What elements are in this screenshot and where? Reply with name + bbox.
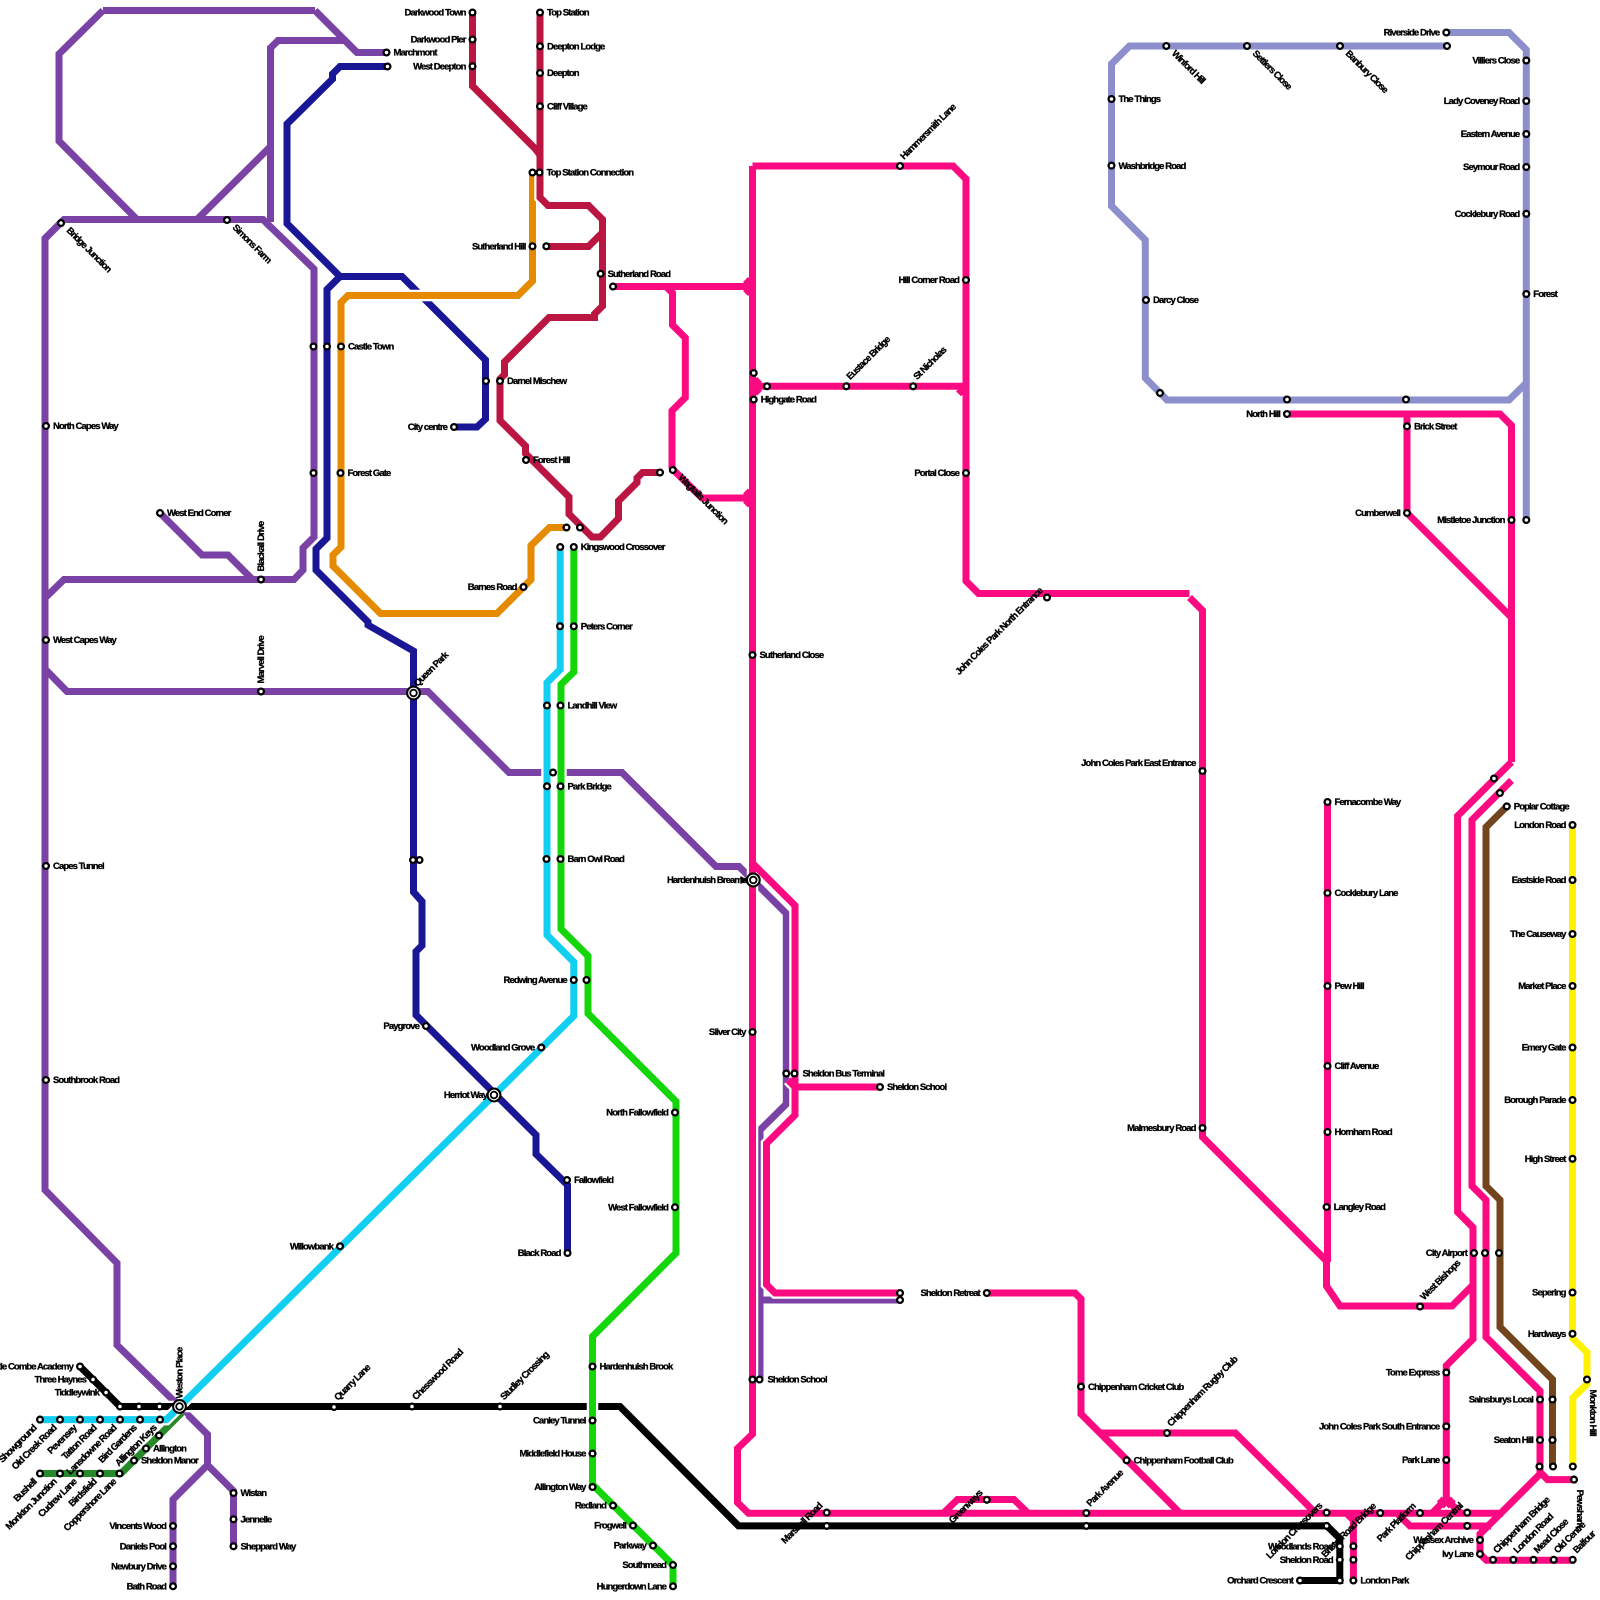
- svg-text:Castle Combe Academy: Castle Combe Academy: [0, 1362, 75, 1373]
- svg-text:Wistan: Wistan: [241, 1488, 268, 1499]
- svg-text:Chippenham Cricket Club: Chippenham Cricket Club: [1088, 1382, 1185, 1393]
- svg-text:Sheldon School: Sheldon School: [768, 1375, 827, 1386]
- svg-text:Hardenhuish Brook: Hardenhuish Brook: [600, 1362, 674, 1373]
- svg-text:Hungerdown Lane: Hungerdown Lane: [597, 1582, 667, 1593]
- svg-text:Daniels Pool: Daniels Pool: [120, 1542, 166, 1553]
- svg-text:Blackall Drive: Blackall Drive: [256, 521, 267, 571]
- svg-text:Cliff Avenue: Cliff Avenue: [1335, 1061, 1380, 1072]
- svg-text:Allington Way: Allington Way: [534, 1482, 587, 1493]
- svg-text:Washbridge Road: Washbridge Road: [1119, 161, 1187, 172]
- svg-text:Newbury Drive: Newbury Drive: [111, 1562, 166, 1573]
- svg-text:Black Road: Black Road: [518, 1248, 562, 1259]
- svg-text:Orchard Crescent: Orchard Crescent: [1227, 1576, 1295, 1587]
- svg-text:Redland: Redland: [575, 1501, 607, 1512]
- svg-text:Redwing Avenue: Redwing Avenue: [504, 975, 568, 986]
- svg-text:Barn Owl Road: Barn Owl Road: [568, 854, 625, 865]
- svg-text:Castle Town: Castle Town: [348, 342, 394, 353]
- svg-text:Silver City: Silver City: [709, 1027, 747, 1038]
- svg-text:Sutherland Close: Sutherland Close: [760, 650, 824, 661]
- svg-text:Cocklebury Road: Cocklebury Road: [1455, 209, 1521, 220]
- svg-text:Allington: Allington: [153, 1444, 187, 1455]
- svg-text:Langley Road: Langley Road: [1334, 1202, 1387, 1213]
- svg-text:West End Corner: West End Corner: [167, 508, 232, 519]
- svg-text:The Causeway: The Causeway: [1510, 929, 1567, 940]
- svg-text:Sheldon Road: Sheldon Road: [1280, 1555, 1334, 1566]
- svg-text:Darnel Mischew: Darnel Mischew: [507, 376, 568, 387]
- svg-text:Paygrove: Paygrove: [383, 1021, 419, 1032]
- svg-text:Tiddleywink: Tiddleywink: [55, 1388, 101, 1399]
- svg-text:John Coles Park East Entrance: John Coles Park East Entrance: [1081, 758, 1196, 769]
- svg-text:Eastside Road: Eastside Road: [1512, 875, 1567, 886]
- svg-text:Forest: Forest: [1533, 289, 1558, 300]
- svg-text:Hornham Road: Hornham Road: [1335, 1127, 1393, 1138]
- svg-text:Top Station: Top Station: [547, 8, 590, 19]
- svg-text:Deepton: Deepton: [547, 68, 580, 79]
- svg-text:Malmesbury Road: Malmesbury Road: [1127, 1123, 1196, 1134]
- svg-text:Herriot Way: Herriot Way: [444, 1090, 489, 1101]
- svg-text:London Park: London Park: [1360, 1576, 1410, 1587]
- svg-text:Barnes Road: Barnes Road: [468, 582, 518, 593]
- svg-text:Weston Place: Weston Place: [175, 1347, 186, 1398]
- svg-text:Seymour Road: Seymour Road: [1463, 162, 1520, 173]
- svg-text:Landhill View: Landhill View: [568, 701, 618, 712]
- svg-text:Darkwood Town: Darkwood Town: [405, 8, 467, 19]
- svg-text:Ivy Lane: Ivy Lane: [1442, 1549, 1473, 1560]
- svg-text:Fernacombe Way: Fernacombe Way: [1335, 797, 1402, 808]
- svg-text:Poplar Cottage: Poplar Cottage: [1514, 802, 1570, 813]
- svg-text:Three Haynes: Three Haynes: [34, 1375, 86, 1386]
- svg-text:Sepering: Sepering: [1532, 1288, 1567, 1299]
- svg-text:Pew Hill: Pew Hill: [1335, 981, 1364, 992]
- svg-text:Emery Gate: Emery Gate: [1522, 1043, 1566, 1054]
- svg-text:Marvell Drive: Marvell Drive: [256, 635, 267, 683]
- svg-text:Sutherland Hill: Sutherland Hill: [472, 242, 526, 253]
- svg-text:John Coles Park South Entrance: John Coles Park South Entrance: [1319, 1422, 1440, 1433]
- svg-text:Park Bridge: Park Bridge: [568, 782, 612, 793]
- svg-text:Sheppard Way: Sheppard Way: [241, 1542, 297, 1553]
- svg-text:Southbrook Road: Southbrook Road: [53, 1075, 120, 1086]
- svg-text:West Deepton: West Deepton: [413, 62, 466, 73]
- svg-text:North Fallowfield: North Fallowfield: [606, 1108, 669, 1119]
- svg-text:Borough Parade: Borough Parade: [1504, 1095, 1566, 1106]
- svg-text:Parkway: Parkway: [614, 1541, 648, 1552]
- svg-text:Kingswood Crossover: Kingswood Crossover: [581, 542, 666, 553]
- svg-text:Sheldon School: Sheldon School: [887, 1082, 946, 1093]
- svg-text:Sheldon Manor: Sheldon Manor: [141, 1456, 199, 1467]
- svg-text:Eastern Avenue: Eastern Avenue: [1461, 129, 1520, 140]
- svg-text:City centre: City centre: [408, 422, 448, 433]
- svg-text:Peters Corner: Peters Corner: [581, 622, 633, 633]
- svg-text:North Capes Way: North Capes Way: [53, 421, 119, 432]
- svg-text:Portal Close: Portal Close: [914, 468, 959, 479]
- svg-text:Southmead: Southmead: [622, 1560, 667, 1571]
- svg-text:Seaton Hill: Seaton Hill: [1494, 1435, 1533, 1446]
- svg-text:Cocklebury Lane: Cocklebury Lane: [1335, 888, 1399, 899]
- svg-text:Willowbank: Willowbank: [290, 1242, 335, 1253]
- svg-text:Mistletoe Junction: Mistletoe Junction: [1437, 515, 1505, 526]
- svg-text:Sutherland Road: Sutherland Road: [608, 269, 672, 280]
- svg-text:Brick Street: Brick Street: [1414, 422, 1458, 433]
- svg-text:Forest Gate: Forest Gate: [348, 468, 392, 479]
- svg-text:Middlefield House: Middlefield House: [520, 1449, 587, 1460]
- svg-text:Bath Road: Bath Road: [127, 1582, 167, 1593]
- svg-text:Villiers Close: Villiers Close: [1472, 56, 1520, 67]
- svg-text:Market Place: Market Place: [1518, 981, 1566, 992]
- svg-text:City Airport: City Airport: [1426, 1248, 1469, 1259]
- svg-text:Highgate Road: Highgate Road: [761, 395, 817, 406]
- svg-text:Vincents Wood: Vincents Wood: [109, 1521, 167, 1532]
- svg-text:Monkton Hill: Monkton Hill: [1587, 1390, 1598, 1436]
- svg-text:Darcy Close: Darcy Close: [1153, 295, 1199, 306]
- svg-text:Hardways: Hardways: [1528, 1329, 1566, 1340]
- svg-text:Forest Hill: Forest Hill: [533, 455, 570, 466]
- svg-text:Hill Corner Road: Hill Corner Road: [898, 275, 960, 286]
- svg-text:Cumberwell: Cumberwell: [1355, 508, 1400, 519]
- svg-text:Marchmont: Marchmont: [394, 48, 439, 59]
- svg-text:Riverside Drive: Riverside Drive: [1384, 28, 1440, 39]
- svg-text:West Capes Way: West Capes Way: [53, 635, 118, 646]
- svg-text:Sainsburys Local: Sainsburys Local: [1469, 1395, 1534, 1406]
- svg-text:Sheldon Retreat: Sheldon Retreat: [920, 1288, 981, 1299]
- svg-text:Frogwell: Frogwell: [594, 1521, 626, 1532]
- svg-text:Lady Coveney Road: Lady Coveney Road: [1444, 96, 1521, 107]
- svg-text:North Hill: North Hill: [1246, 409, 1280, 420]
- svg-text:Canley Tunnel: Canley Tunnel: [533, 1416, 586, 1427]
- svg-text:Darkwood Pier: Darkwood Pier: [411, 35, 467, 46]
- svg-text:Top Station Connection: Top Station Connection: [547, 168, 635, 179]
- svg-text:Capes Tunnel: Capes Tunnel: [53, 861, 104, 872]
- svg-text:Fallowfield: Fallowfield: [574, 1175, 614, 1186]
- svg-text:Woodland Grove: Woodland Grove: [471, 1043, 535, 1054]
- svg-text:Park Lane: Park Lane: [1402, 1455, 1440, 1466]
- svg-text:Tome Express: Tome Express: [1386, 1368, 1440, 1379]
- svg-text:Sheldon Bus Terminal: Sheldon Bus Terminal: [803, 1069, 885, 1080]
- svg-text:The Things: The Things: [1119, 94, 1161, 105]
- svg-text:London Road: London Road: [1514, 820, 1566, 831]
- svg-text:Deepton Lodge: Deepton Lodge: [547, 42, 605, 53]
- svg-text:Cliff Village: Cliff Village: [547, 102, 587, 113]
- svg-text:Woodlands Road: Woodlands Road: [1268, 1541, 1334, 1552]
- svg-text:Jennelle: Jennelle: [241, 1515, 272, 1526]
- svg-text:West Fallowfield: West Fallowfield: [608, 1203, 669, 1214]
- svg-text:Hardenhuish Breams: Hardenhuish Breams: [667, 875, 747, 886]
- svg-text:High Street: High Street: [1525, 1154, 1568, 1165]
- svg-text:Chippenham Football Club: Chippenham Football Club: [1134, 1456, 1234, 1467]
